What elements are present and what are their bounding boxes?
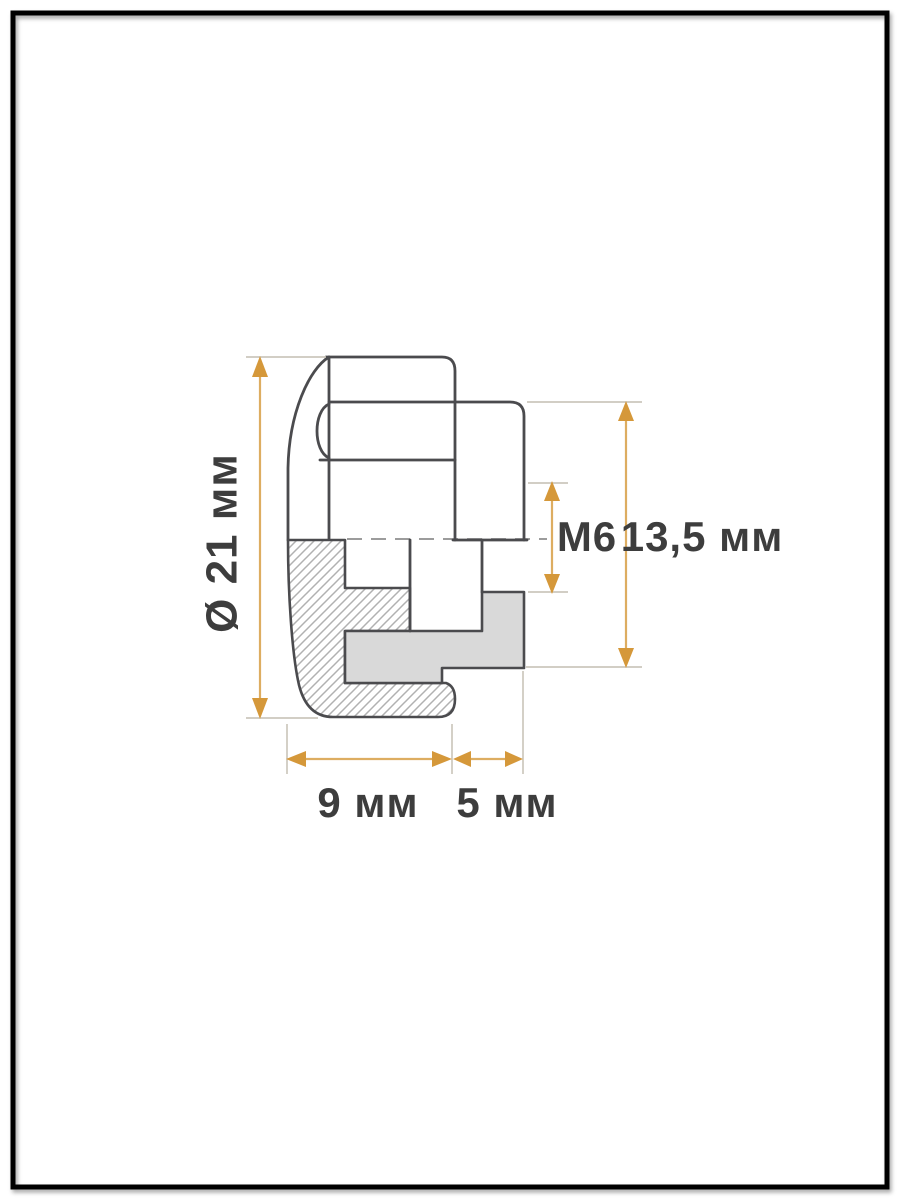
outer-left-profile	[288, 357, 329, 540]
arrow-up-icon	[544, 481, 560, 501]
label-tail-width: 5 мм	[456, 779, 557, 826]
page-frame	[13, 13, 887, 1187]
dimension-flange-height: 13,5 мм	[618, 401, 783, 668]
body-section-hatched	[288, 540, 455, 717]
dimension-tail-width: 5 мм	[453, 751, 558, 826]
top-cap	[326, 357, 455, 540]
arrow-left-icon	[453, 751, 471, 767]
groove-arc	[317, 404, 329, 458]
part-section-view	[288, 357, 547, 717]
flange	[329, 402, 524, 540]
arrow-down-icon	[252, 698, 268, 719]
label-overall-diameter: Ø 21 мм	[198, 453, 247, 633]
arrow-down-icon	[544, 574, 560, 594]
arrow-down-icon	[618, 648, 634, 668]
arrow-up-icon	[618, 401, 634, 421]
dimension-body-width: 9 мм	[286, 751, 452, 826]
dimension-thread-size: M6	[544, 481, 617, 594]
arrow-up-icon	[252, 356, 268, 377]
label-thread-size: M6	[557, 513, 617, 560]
dimension-overall-diameter: Ø 21 мм	[198, 356, 269, 719]
arrow-right-icon	[505, 751, 523, 767]
arrow-left-icon	[286, 751, 306, 767]
arrow-right-icon	[432, 751, 452, 767]
drawing-page: Ø 21 мм M6 13,5 мм 9 мм 5 мм	[0, 0, 900, 1200]
technical-drawing: Ø 21 мм M6 13,5 мм 9 мм 5 мм	[0, 0, 900, 1200]
label-body-width: 9 мм	[317, 779, 418, 826]
label-flange-height: 13,5 мм	[621, 513, 784, 560]
